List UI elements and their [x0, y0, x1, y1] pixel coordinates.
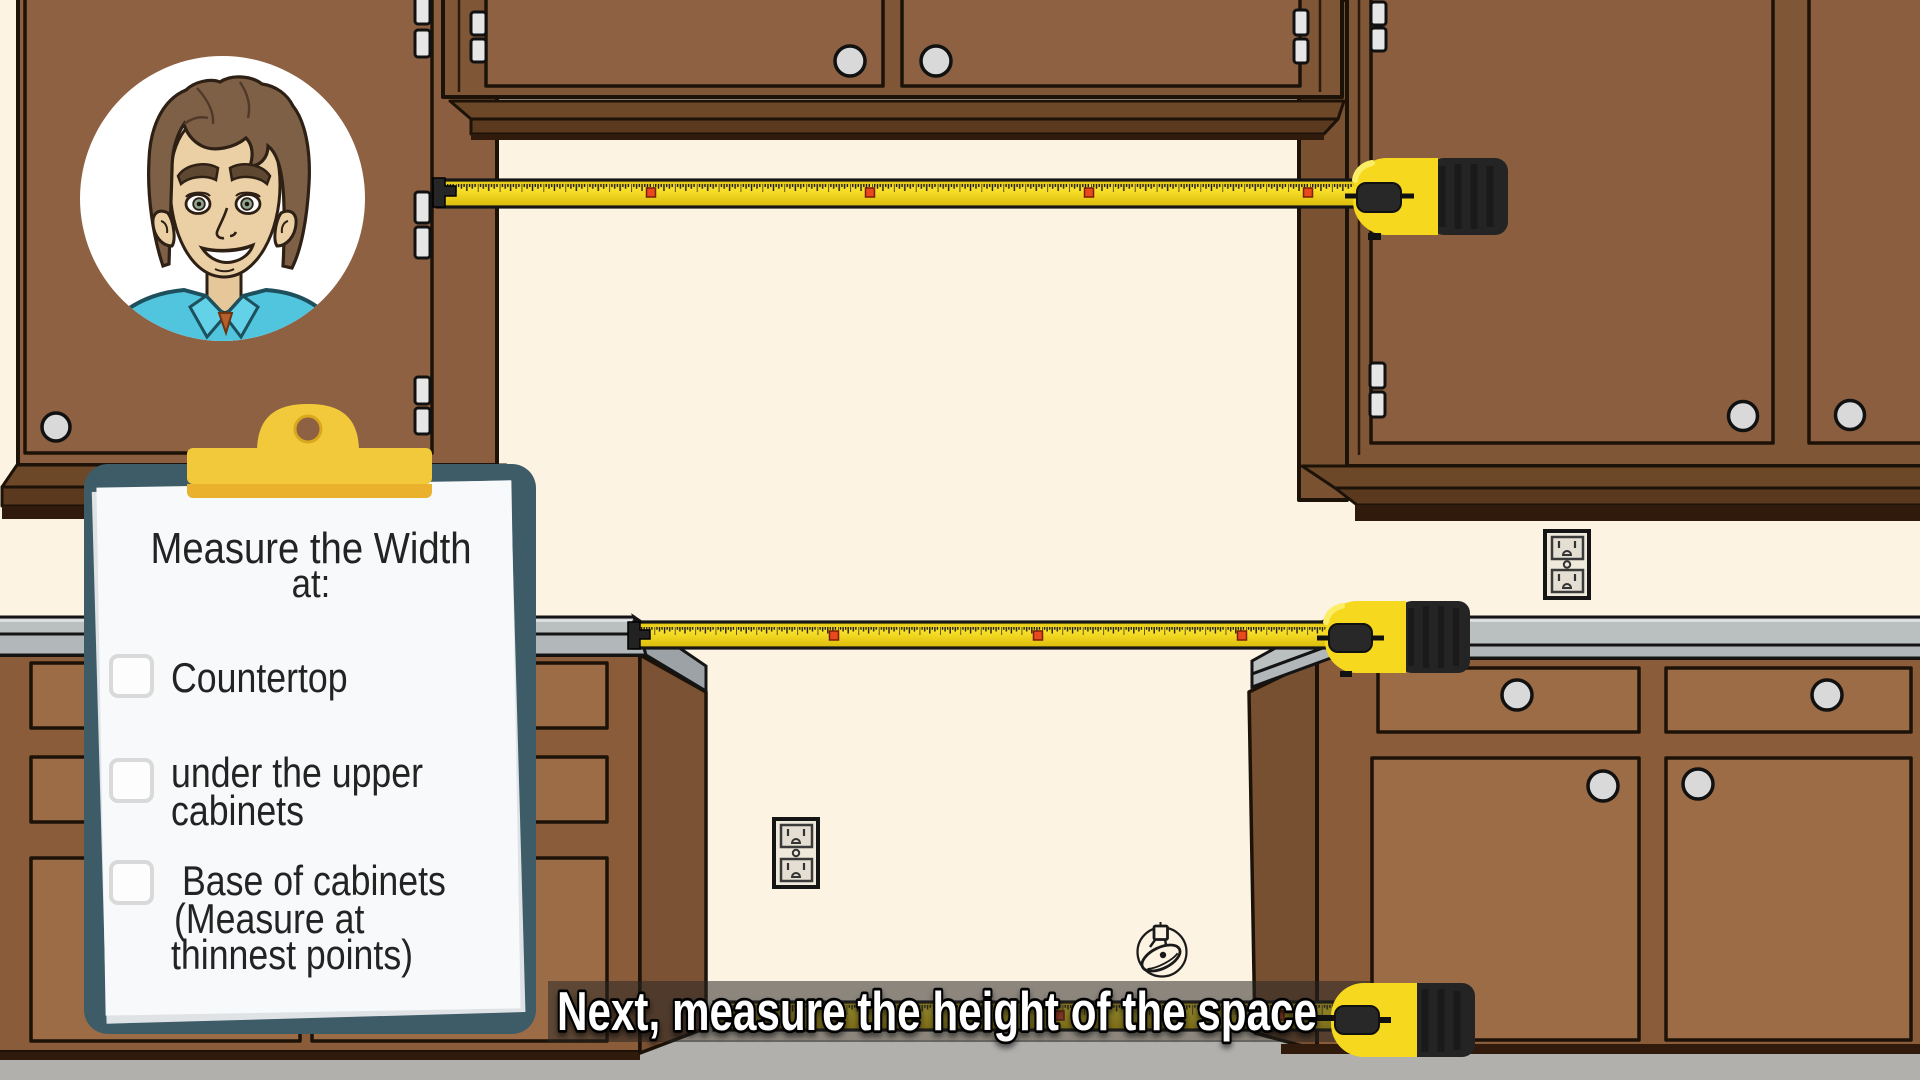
- svg-text:at:: at:: [292, 561, 331, 606]
- svg-text:thinnest points): thinnest points): [171, 932, 413, 978]
- svg-text:Countertop: Countertop: [171, 655, 348, 701]
- svg-text:cabinets: cabinets: [171, 788, 304, 834]
- svg-text:Next, measure the height of th: Next, measure the height of the space: [557, 980, 1317, 1042]
